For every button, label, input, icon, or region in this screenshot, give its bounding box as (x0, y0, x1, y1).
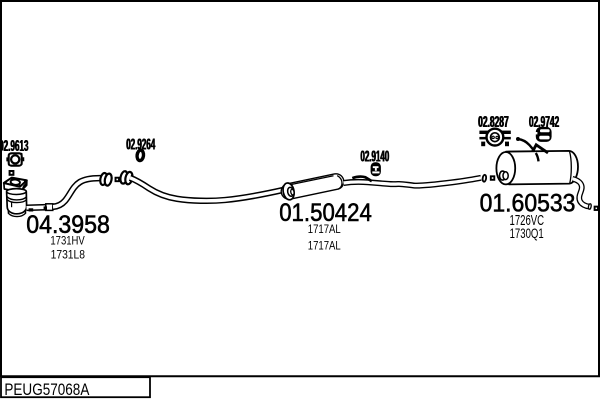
svg-text:1731HV: 1731HV (50, 234, 85, 247)
svg-text:1730Q1: 1730Q1 (510, 225, 544, 241)
svg-text:1717AL: 1717AL (308, 239, 341, 252)
svg-text:PEUG57068A: PEUG57068A (4, 381, 90, 400)
svg-text:1731L8: 1731L8 (51, 249, 85, 262)
svg-text:1717AL: 1717AL (308, 223, 341, 236)
